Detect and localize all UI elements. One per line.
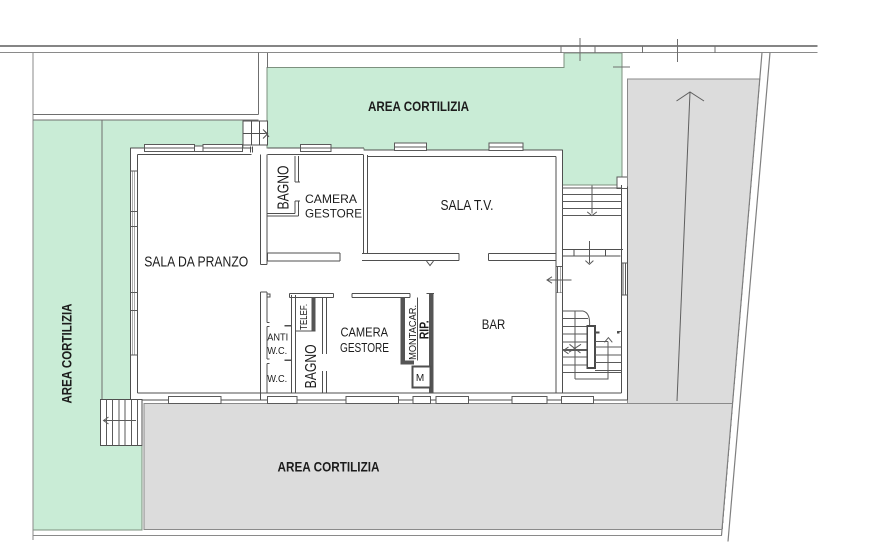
svg-text:GESTORE: GESTORE [305,207,362,221]
svg-text:SALA T.V.: SALA T.V. [441,197,494,214]
svg-text:RIP.: RIP. [416,320,431,339]
svg-text:M: M [416,373,424,384]
svg-text:AREA CORTILIZIA: AREA CORTILIZIA [278,458,380,474]
svg-text:CAMERA: CAMERA [341,325,389,340]
svg-text:ANTI: ANTI [267,332,288,343]
svg-text:AREA CORTILIZIA: AREA CORTILIZIA [368,98,469,114]
svg-text:SALA DA PRANZO: SALA DA PRANZO [144,254,248,270]
svg-text:TELEF.: TELEF. [298,304,310,330]
svg-text:W.C.: W.C. [267,346,287,357]
svg-text:CAMERA: CAMERA [305,192,357,206]
svg-text:BAR: BAR [482,316,506,332]
svg-text:GESTORE: GESTORE [340,340,389,355]
svg-text:BAGNO: BAGNO [276,166,293,210]
svg-text:W.C.: W.C. [267,374,287,385]
svg-text:AREA CORTILIZIA: AREA CORTILIZIA [58,304,74,404]
svg-text:BAGNO: BAGNO [303,344,320,388]
